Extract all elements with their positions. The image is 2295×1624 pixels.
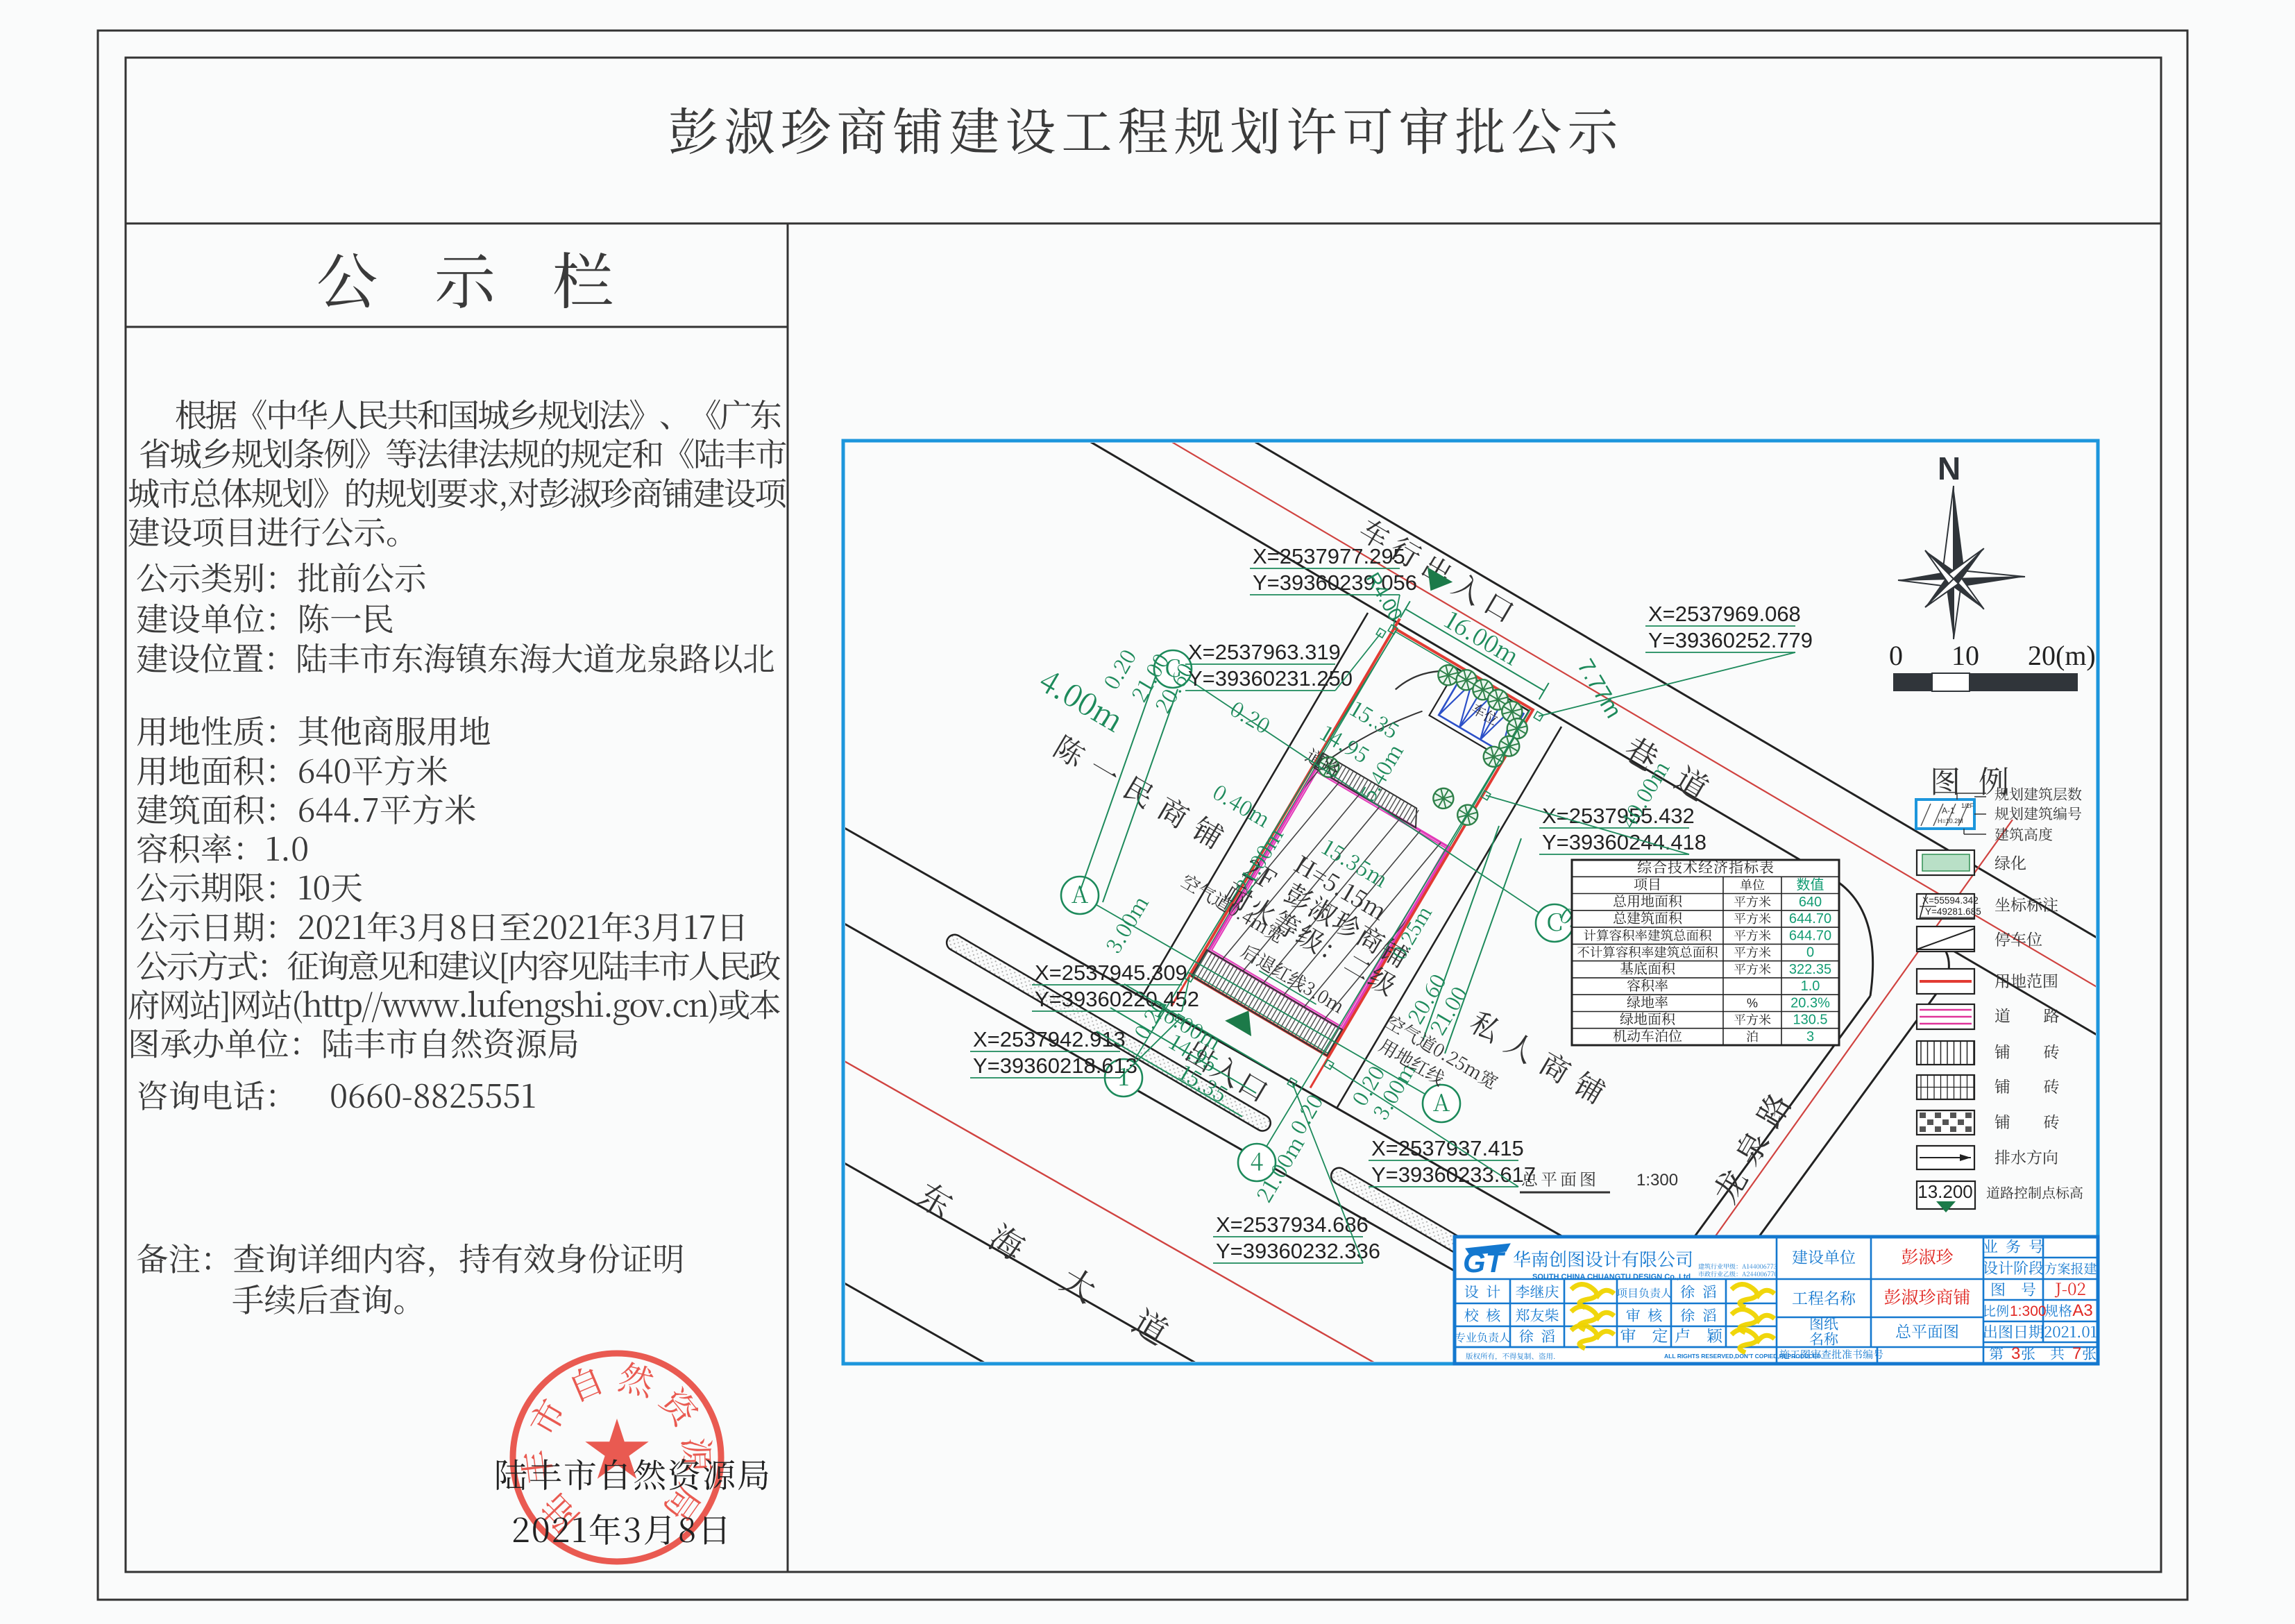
svg-text:X=2537942.913: X=2537942.913 bbox=[973, 1027, 1126, 1051]
svg-text:ALL RIGHTS RESERVED,DON'T COPI: ALL RIGHTS RESERVED,DON'T COPIED,REPRODU… bbox=[1664, 1353, 1822, 1360]
svg-text:数值: 数值 bbox=[1797, 877, 1824, 893]
svg-text:1/2F: 1/2F bbox=[1961, 802, 1974, 809]
svg-text:7: 7 bbox=[2072, 1344, 2081, 1363]
svg-text:322.35: 322.35 bbox=[1789, 962, 1831, 977]
svg-text:Y=39360231.250: Y=39360231.250 bbox=[1188, 666, 1353, 691]
svg-text:SOUTH CHINA CHUANGTU DESIGN Co: SOUTH CHINA CHUANGTU DESIGN Co.,Ltd bbox=[1532, 1273, 1691, 1281]
svg-text:Y=39360218.613: Y=39360218.613 bbox=[973, 1054, 1137, 1078]
svg-text:N: N bbox=[1938, 450, 1961, 487]
svg-text:0: 0 bbox=[1889, 640, 1903, 671]
svg-text:H=10.2M: H=10.2M bbox=[1938, 818, 1963, 824]
svg-text:Y=39360233.617: Y=39360233.617 bbox=[1371, 1162, 1536, 1187]
svg-text:20(m): 20(m) bbox=[2028, 640, 2096, 671]
svg-text:640: 640 bbox=[1799, 895, 1822, 910]
svg-text:Y=39360220.452: Y=39360220.452 bbox=[1035, 987, 1199, 1011]
svg-text:10: 10 bbox=[1951, 640, 1979, 671]
svg-text:1:300: 1:300 bbox=[2010, 1303, 2047, 1319]
svg-text:X=2537945.309: X=2537945.309 bbox=[1035, 961, 1187, 985]
svg-text:A3: A3 bbox=[2072, 1301, 2092, 1320]
svg-text:X=2537969.068: X=2537969.068 bbox=[1648, 602, 1801, 626]
svg-text:Y=39360244.418: Y=39360244.418 bbox=[1542, 830, 1707, 854]
svg-text:20.3%: 20.3% bbox=[1790, 996, 1830, 1011]
svg-text:X=2537937.415: X=2537937.415 bbox=[1371, 1136, 1524, 1160]
svg-text:3: 3 bbox=[1806, 1029, 1814, 1044]
svg-text:1.0: 1.0 bbox=[1801, 979, 1820, 994]
svg-text:%: % bbox=[1747, 997, 1758, 1010]
svg-text:Y=39360232.336: Y=39360232.336 bbox=[1216, 1239, 1380, 1263]
svg-text:Y=39360252.779: Y=39360252.779 bbox=[1648, 628, 1813, 652]
svg-text:644.70: 644.70 bbox=[1789, 928, 1831, 943]
svg-text:X=55594.342: X=55594.342 bbox=[1922, 895, 1979, 906]
svg-text:X=2537977.295: X=2537977.295 bbox=[1253, 544, 1405, 568]
svg-text:1:300: 1:300 bbox=[1636, 1171, 1678, 1190]
svg-text:13.200: 13.200 bbox=[1917, 1181, 1973, 1202]
svg-text:Y=49281.685: Y=49281.685 bbox=[1925, 906, 1981, 917]
svg-text:130.5: 130.5 bbox=[1793, 1013, 1827, 1028]
svg-text:0: 0 bbox=[1806, 945, 1814, 961]
svg-text:644.70: 644.70 bbox=[1789, 911, 1831, 927]
svg-text:X=2537955.432: X=2537955.432 bbox=[1542, 804, 1695, 828]
svg-text:X=2537934.686: X=2537934.686 bbox=[1216, 1212, 1369, 1237]
svg-text:3: 3 bbox=[2011, 1344, 2020, 1363]
svg-text:A-1: A-1 bbox=[1942, 806, 1955, 815]
svg-text:X=2537963.319: X=2537963.319 bbox=[1188, 640, 1341, 664]
